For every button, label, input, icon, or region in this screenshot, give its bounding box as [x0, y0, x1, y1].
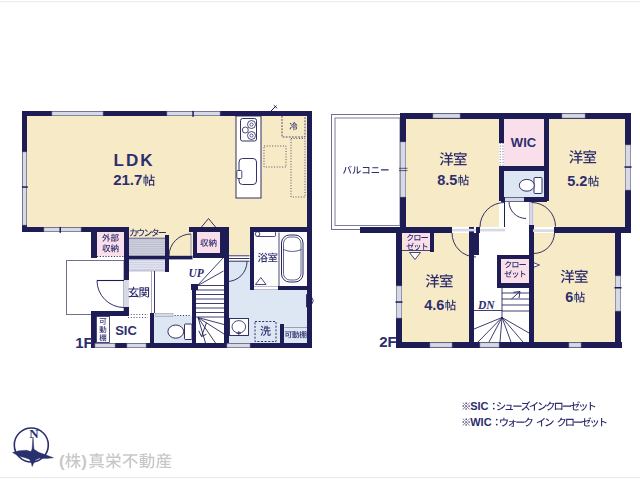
- svg-text:SIC: SIC: [115, 323, 137, 338]
- svg-text:2F: 2F: [379, 333, 397, 350]
- svg-text:WIC: WIC: [511, 135, 537, 150]
- svg-text:5.2: 5.2: [567, 173, 587, 189]
- svg-text:): ): [81, 452, 87, 471]
- svg-text:6: 6: [565, 289, 573, 305]
- svg-text:N: N: [29, 426, 39, 441]
- svg-text:UP: UP: [189, 267, 205, 279]
- svg-text:WIC: WIC: [470, 416, 491, 428]
- svg-text:8.5: 8.5: [437, 172, 457, 188]
- svg-text:DN: DN: [477, 299, 495, 311]
- svg-text:SIC: SIC: [470, 400, 488, 412]
- svg-text:LDK: LDK: [114, 151, 155, 170]
- svg-text:(: (: [59, 452, 65, 471]
- svg-text:21.7: 21.7: [113, 171, 142, 188]
- svg-text:1F: 1F: [75, 334, 93, 351]
- svg-text:4.6: 4.6: [424, 297, 444, 313]
